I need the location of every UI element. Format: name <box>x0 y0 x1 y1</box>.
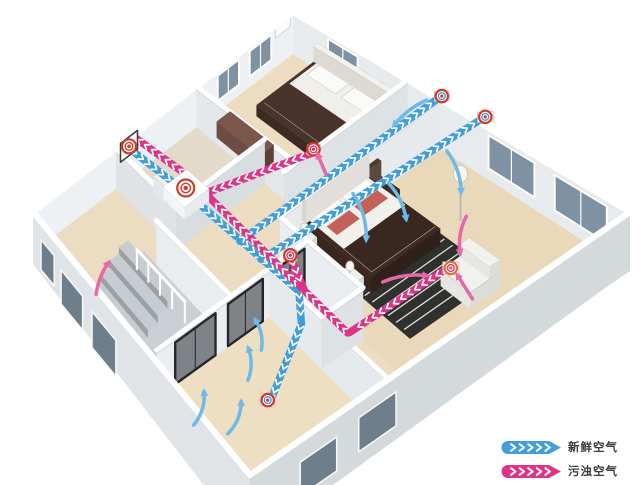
ventilation-diagram: 新鲜空气 污浊空气 <box>0 0 640 485</box>
fresh-drop-duct <box>296 292 304 324</box>
supply-vent-master <box>477 111 493 123</box>
fresh-air-label: 新鲜空气 <box>568 439 618 455</box>
legend-row-stale-air: 污浊空气 <box>501 463 618 479</box>
exhaust-vent-master-floor <box>443 262 459 274</box>
floorplan-illustration <box>0 0 640 485</box>
stale-air-band-icon <box>501 465 563 478</box>
fresh-air-band-icon <box>501 441 563 454</box>
legend-row-fresh-air: 新鲜空气 <box>501 439 618 455</box>
supply-vent-living-floor <box>260 393 275 407</box>
exhaust-vent-hallway <box>283 249 297 261</box>
stale-air-label: 污浊空气 <box>568 463 618 479</box>
supply-vent-bedroom1 <box>435 90 450 102</box>
legend: 新鲜空气 污浊空气 <box>501 439 618 479</box>
